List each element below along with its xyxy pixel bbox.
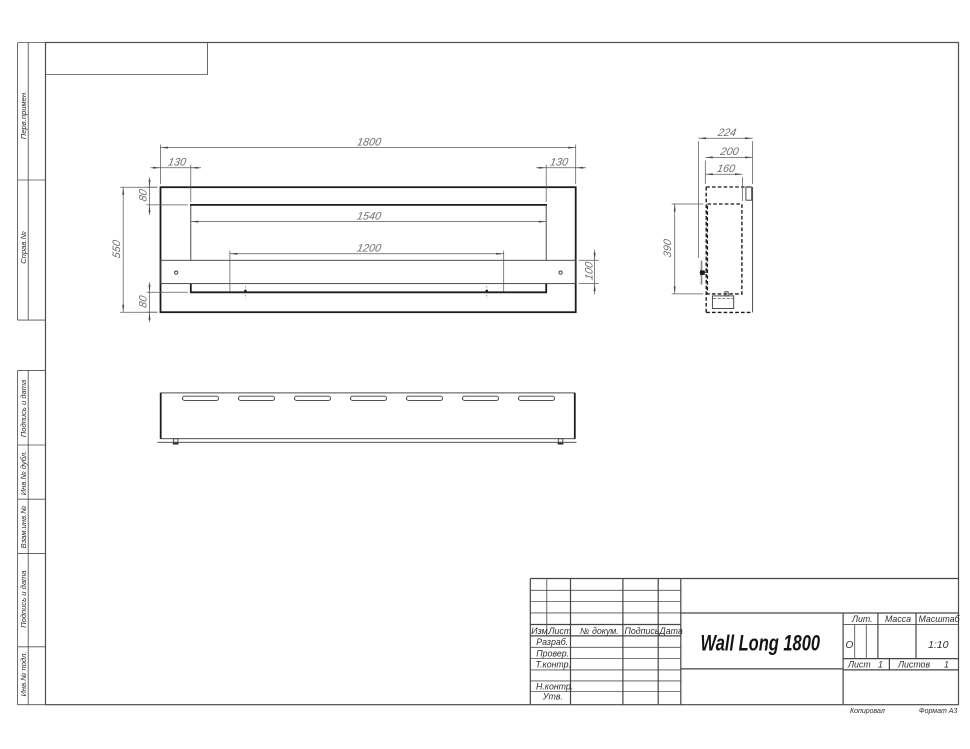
svg-text:Разраб.: Разраб. — [536, 637, 568, 647]
svg-text:Подпись: Подпись — [625, 626, 660, 636]
svg-text:Формат А3: Формат А3 — [919, 708, 957, 715]
svg-text:130: 130 — [167, 156, 187, 168]
svg-text:Масса: Масса — [885, 614, 911, 624]
svg-text:Изм.: Изм. — [531, 626, 550, 636]
svg-text:Лист: Лист — [847, 659, 871, 669]
svg-text:Инв.№ подл.: Инв.№ подл. — [19, 651, 28, 696]
svg-text:1: 1 — [878, 659, 883, 669]
svg-text:Лит.: Лит. — [851, 614, 873, 624]
svg-text:80: 80 — [137, 188, 149, 202]
svg-text:Перв.примен.: Перв.примен. — [19, 91, 28, 139]
svg-text:160: 160 — [716, 163, 736, 175]
svg-text:100: 100 — [583, 261, 595, 281]
svg-text:1200: 1200 — [356, 242, 382, 254]
svg-text:1540: 1540 — [356, 210, 382, 222]
svg-text:Листов: Листов — [897, 659, 930, 669]
svg-text:390: 390 — [662, 238, 674, 258]
svg-text:Копировал: Копировал — [850, 708, 885, 715]
svg-text:1:10: 1:10 — [928, 639, 949, 651]
svg-text:80: 80 — [137, 295, 149, 309]
svg-text:224: 224 — [716, 127, 737, 139]
svg-text:Т.контр.: Т.контр. — [536, 659, 572, 669]
svg-text:Утв.: Утв. — [542, 692, 563, 702]
svg-text:Масштаб: Масштаб — [919, 614, 961, 624]
svg-text:Справ.№: Справ.№ — [19, 231, 28, 263]
svg-text:130: 130 — [549, 156, 569, 168]
svg-text:200: 200 — [718, 146, 739, 158]
svg-text:Лист: Лист — [548, 626, 572, 636]
svg-text:Дата: Дата — [659, 626, 683, 636]
svg-text:Провер.: Провер. — [536, 648, 569, 658]
svg-text:Н.контр.: Н.контр. — [536, 681, 573, 691]
svg-text:Взам.инв.№: Взам.инв.№ — [19, 506, 28, 549]
svg-text:Инв.№ дубл.: Инв.№ дубл. — [19, 451, 28, 496]
svg-text:Подпись и дата: Подпись и дата — [19, 570, 28, 627]
svg-text:№ докум.: № докум. — [580, 626, 619, 636]
svg-text:1: 1 — [944, 659, 949, 669]
svg-text:Wall Long 1800: Wall Long 1800 — [701, 631, 821, 656]
svg-text:550: 550 — [111, 239, 123, 259]
svg-text:Подпись и дата: Подпись и дата — [19, 380, 28, 437]
svg-text:О: О — [846, 640, 854, 651]
svg-text:1800: 1800 — [356, 136, 382, 148]
